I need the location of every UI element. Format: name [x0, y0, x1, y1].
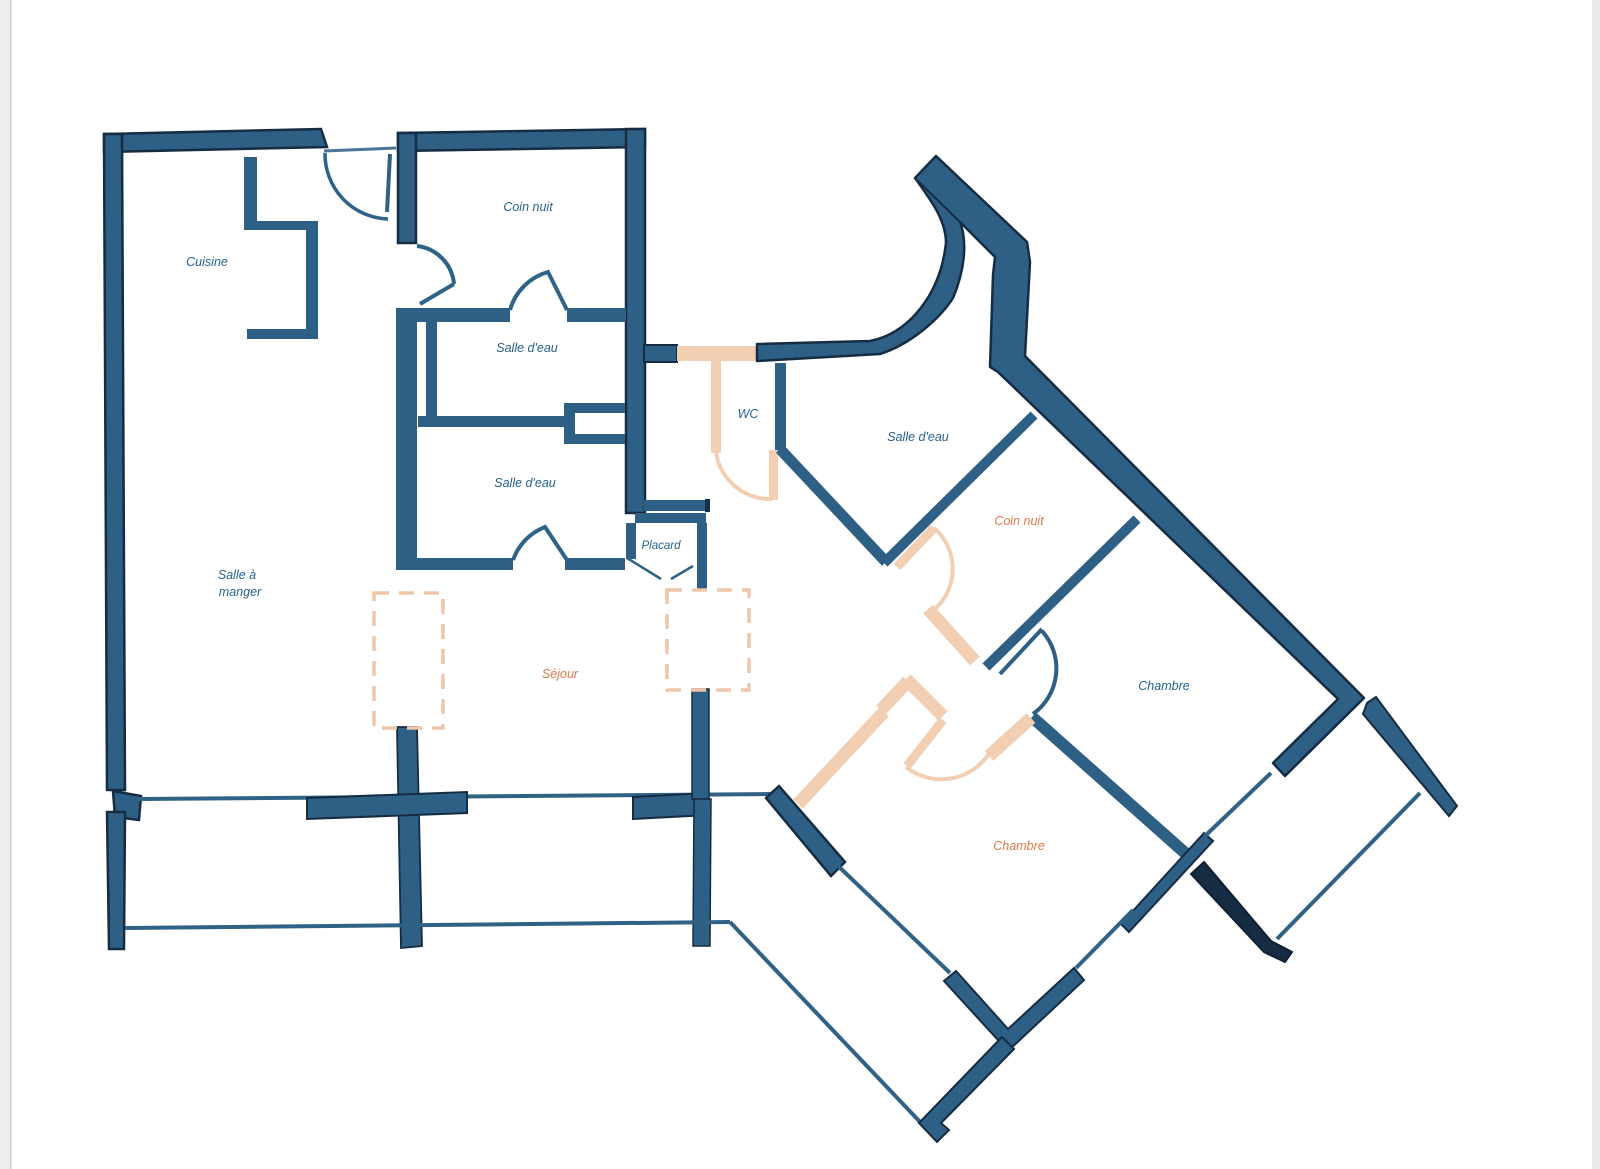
svg-text:Salle d'eau: Salle d'eau [494, 476, 556, 490]
svg-text:Placard: Placard [642, 540, 682, 552]
svg-text:Coin nuit: Coin nuit [994, 514, 1044, 528]
svg-text:Cuisine: Cuisine [186, 255, 228, 269]
svg-text:Séjour: Séjour [542, 667, 579, 681]
svg-text:manger: manger [219, 585, 262, 599]
svg-text:WC: WC [738, 407, 760, 421]
svg-text:Chambre: Chambre [1138, 679, 1189, 693]
svg-text:Salle d'eau: Salle d'eau [887, 430, 949, 444]
svg-text:Chambre: Chambre [993, 839, 1044, 853]
svg-text:Salle d'eau: Salle d'eau [496, 341, 558, 355]
svg-text:Salle à: Salle à [218, 568, 256, 582]
svg-text:Coin nuit: Coin nuit [503, 200, 553, 214]
